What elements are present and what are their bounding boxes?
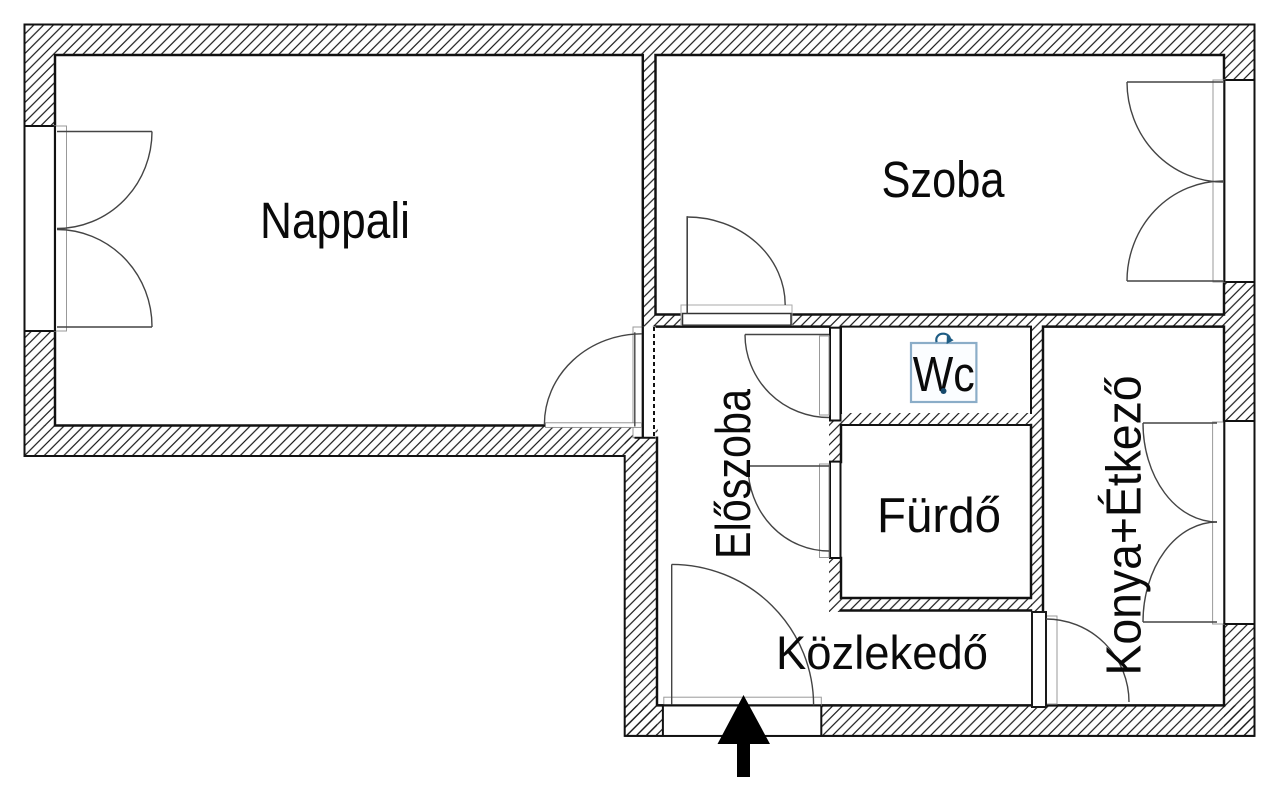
svg-text:Szoba: Szoba (882, 151, 1006, 208)
svg-text:Előszoba: Előszoba (707, 388, 761, 559)
svg-text:Nappali: Nappali (260, 192, 410, 249)
svg-text:Fürdő: Fürdő (877, 489, 1001, 543)
svg-text:Konya+Étkező: Konya+Étkező (1098, 376, 1152, 676)
svg-text:Közlekedő: Közlekedő (776, 627, 988, 680)
